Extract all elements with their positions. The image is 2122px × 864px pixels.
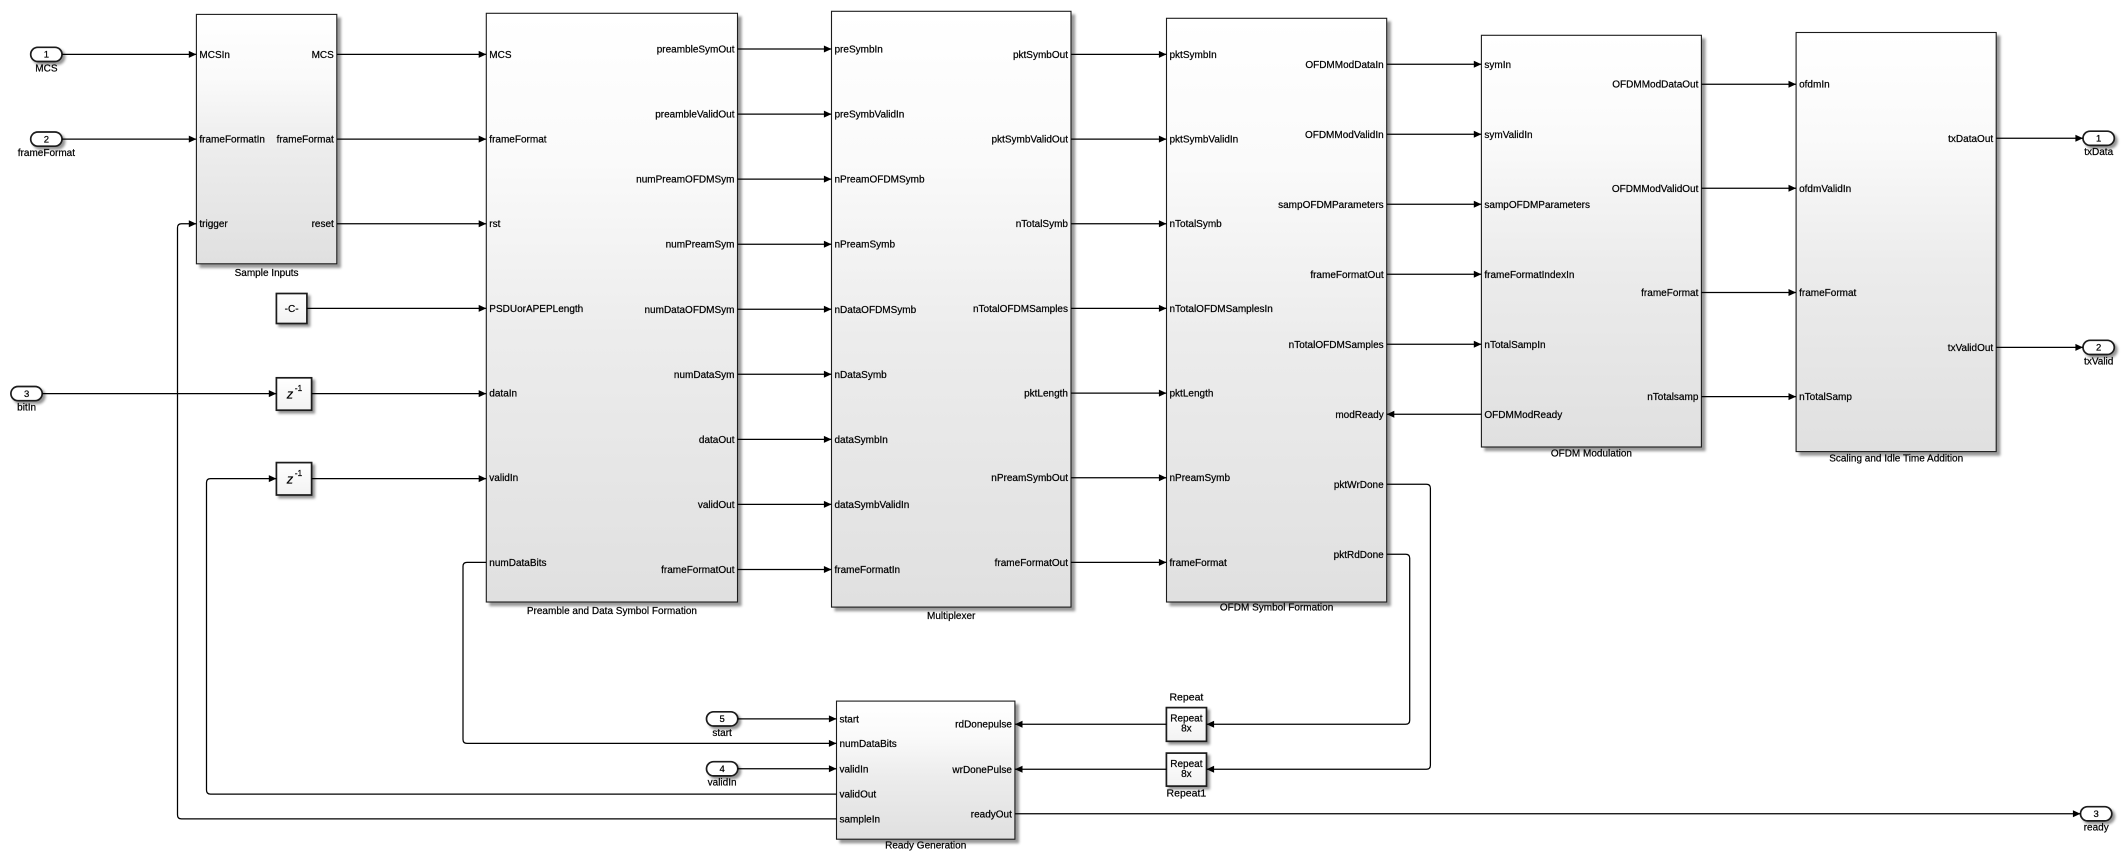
svg-text:ready: ready	[2084, 823, 2109, 834]
svg-text:frameFormatIndexIn: frameFormatIndexIn	[1484, 270, 1574, 281]
svg-text:symIn: symIn	[1484, 60, 1511, 71]
svg-text:numPreamOFDMSym: numPreamOFDMSym	[636, 175, 734, 186]
svg-text:pktSymbValidOut: pktSymbValidOut	[991, 135, 1068, 146]
svg-text:OFDMModDataIn: OFDMModDataIn	[1305, 60, 1383, 71]
svg-text:reset: reset	[312, 219, 334, 230]
svg-text:OFDMModValidIn: OFDMModValidIn	[1305, 130, 1384, 141]
svg-text:start: start	[712, 728, 732, 739]
svg-text:3: 3	[2094, 809, 2099, 820]
svg-text:OFDM Symbol Formation: OFDM Symbol Formation	[1220, 603, 1333, 614]
svg-text:bitIn: bitIn	[17, 403, 36, 414]
svg-text:frameFormat: frameFormat	[18, 148, 75, 159]
svg-text:sampOFDMParameters: sampOFDMParameters	[1484, 200, 1590, 211]
svg-text:MCS: MCS	[489, 50, 512, 61]
svg-text:frameFormat: frameFormat	[489, 135, 546, 146]
svg-text:Scaling and Idle Time Addition: Scaling and Idle Time Addition	[1829, 453, 1963, 464]
svg-text:dataSymbIn: dataSymbIn	[835, 435, 888, 446]
svg-text:Ready Generation: Ready Generation	[885, 841, 966, 852]
svg-text:preSymbValidIn: preSymbValidIn	[835, 110, 905, 121]
svg-text:pktSymbOut: pktSymbOut	[1013, 50, 1068, 61]
svg-text:MCS: MCS	[312, 50, 335, 61]
svg-text:ofdmIn: ofdmIn	[1799, 80, 1830, 91]
svg-text:pktWrDone: pktWrDone	[1334, 480, 1384, 491]
svg-text:dataSymbValidIn: dataSymbValidIn	[835, 500, 910, 511]
svg-text:dataOut: dataOut	[699, 435, 735, 446]
svg-text:numDataBits: numDataBits	[489, 558, 546, 569]
svg-text:z: z	[286, 471, 294, 486]
svg-text:nPreamOFDMSymb: nPreamOFDMSymb	[835, 175, 925, 186]
svg-text:8x: 8x	[1181, 769, 1192, 780]
svg-text:OFDMModDataOut: OFDMModDataOut	[1612, 80, 1698, 91]
svg-text:Preamble and Data Symbol Forma: Preamble and Data Symbol Formation	[527, 606, 697, 617]
svg-text:OFDMModReady: OFDMModReady	[1484, 410, 1562, 421]
svg-text:trigger: trigger	[199, 219, 228, 230]
svg-text:nTotalOFDMSamplesIn: nTotalOFDMSamplesIn	[1170, 304, 1273, 315]
svg-text:numDataOFDMSym: numDataOFDMSym	[644, 305, 734, 316]
svg-text:frameFormatIn: frameFormatIn	[199, 135, 265, 146]
svg-text:OFDM Modulation: OFDM Modulation	[1551, 449, 1632, 460]
svg-text:4: 4	[719, 764, 724, 775]
svg-text:nTotalSymb: nTotalSymb	[1016, 219, 1069, 230]
svg-text:nPreamSymb: nPreamSymb	[835, 240, 896, 251]
svg-text:1: 1	[44, 50, 49, 61]
svg-text:nDataOFDMSymb: nDataOFDMSymb	[835, 305, 917, 316]
svg-text:symValidIn: symValidIn	[1484, 130, 1532, 141]
svg-text:nTotalsamp: nTotalsamp	[1647, 392, 1699, 403]
svg-text:frameFormatOut: frameFormatOut	[995, 558, 1069, 569]
svg-text:sampleIn: sampleIn	[840, 814, 881, 825]
svg-text:txValidOut: txValidOut	[1948, 343, 1994, 354]
svg-text:Repeat: Repeat	[1169, 692, 1203, 704]
svg-text:dataIn: dataIn	[489, 389, 517, 400]
svg-text:frameFormat: frameFormat	[1170, 558, 1227, 569]
svg-text:frameFormatIn: frameFormatIn	[835, 565, 901, 576]
svg-text:pktLength: pktLength	[1024, 389, 1068, 400]
svg-text:validOut: validOut	[698, 500, 735, 511]
svg-text:2: 2	[44, 134, 49, 145]
svg-text:frameFormatOut: frameFormatOut	[661, 565, 735, 576]
svg-text:txDataOut: txDataOut	[1948, 134, 1993, 145]
svg-text:validIn: validIn	[840, 764, 869, 775]
svg-text:frameFormat: frameFormat	[277, 135, 334, 146]
svg-text:frameFormatOut: frameFormatOut	[1310, 270, 1384, 281]
svg-text:validOut: validOut	[840, 790, 877, 801]
svg-text:nPreamSymb: nPreamSymb	[1170, 473, 1231, 484]
svg-text:sampOFDMParameters: sampOFDMParameters	[1278, 200, 1384, 211]
svg-text:2: 2	[2096, 343, 2101, 354]
svg-text:Multiplexer: Multiplexer	[927, 611, 976, 622]
svg-text:ofdmValidIn: ofdmValidIn	[1799, 184, 1851, 195]
svg-text:frameFormat: frameFormat	[1799, 288, 1856, 299]
svg-text:MCS: MCS	[35, 63, 58, 74]
svg-text:pktSymbValidIn: pktSymbValidIn	[1170, 135, 1239, 146]
svg-text:numDataSym: numDataSym	[674, 370, 735, 381]
svg-text:pktSymbIn: pktSymbIn	[1170, 50, 1217, 61]
svg-text:MCSIn: MCSIn	[199, 50, 230, 61]
svg-text:numPreamSym: numPreamSym	[666, 240, 735, 251]
svg-text:z: z	[286, 387, 294, 402]
svg-text:readyOut: readyOut	[971, 809, 1012, 820]
svg-text:validIn: validIn	[708, 778, 737, 789]
svg-text:pktLength: pktLength	[1170, 389, 1214, 400]
svg-text:3: 3	[24, 389, 29, 400]
svg-text:Sample Inputs: Sample Inputs	[235, 268, 299, 279]
svg-text:frameFormat: frameFormat	[1641, 288, 1698, 299]
svg-text:validIn: validIn	[489, 473, 518, 484]
svg-text:-C-: -C-	[285, 304, 299, 315]
svg-text:nDataSymb: nDataSymb	[835, 370, 888, 381]
svg-text:start: start	[840, 714, 860, 725]
svg-text:Repeat1: Repeat1	[1167, 787, 1207, 799]
svg-text:nTotalOFDMSamples: nTotalOFDMSamples	[973, 304, 1068, 315]
svg-text:nTotalSymb: nTotalSymb	[1170, 219, 1223, 230]
svg-text:nPreamSymbOut: nPreamSymbOut	[991, 473, 1068, 484]
svg-text:PSDUorAPEPLength: PSDUorAPEPLength	[489, 304, 583, 315]
svg-text:1: 1	[2096, 134, 2101, 145]
svg-text:numDataBits: numDataBits	[840, 739, 897, 750]
svg-text:-1: -1	[295, 383, 303, 393]
svg-text:nTotalSampIn: nTotalSampIn	[1484, 340, 1545, 351]
svg-text:preambleValidOut: preambleValidOut	[655, 110, 735, 121]
svg-text:preSymbIn: preSymbIn	[835, 45, 883, 56]
svg-text:rdDonepulse: rdDonepulse	[955, 720, 1012, 731]
svg-text:8x: 8x	[1181, 724, 1192, 735]
svg-text:OFDMModValidOut: OFDMModValidOut	[1612, 184, 1699, 195]
svg-text:rst: rst	[489, 219, 500, 230]
svg-text:-1: -1	[295, 468, 303, 478]
svg-text:pktRdDone: pktRdDone	[1334, 550, 1384, 561]
svg-text:nTotalSamp: nTotalSamp	[1799, 392, 1852, 403]
svg-text:preambleSymOut: preambleSymOut	[657, 45, 735, 56]
svg-text:wrDonePulse: wrDonePulse	[951, 765, 1012, 776]
svg-text:5: 5	[719, 714, 724, 725]
svg-text:nTotalOFDMSamples: nTotalOFDMSamples	[1289, 340, 1384, 351]
svg-text:txData: txData	[2084, 147, 2113, 158]
svg-text:txValid: txValid	[2084, 356, 2113, 367]
svg-text:modReady: modReady	[1335, 410, 1383, 421]
